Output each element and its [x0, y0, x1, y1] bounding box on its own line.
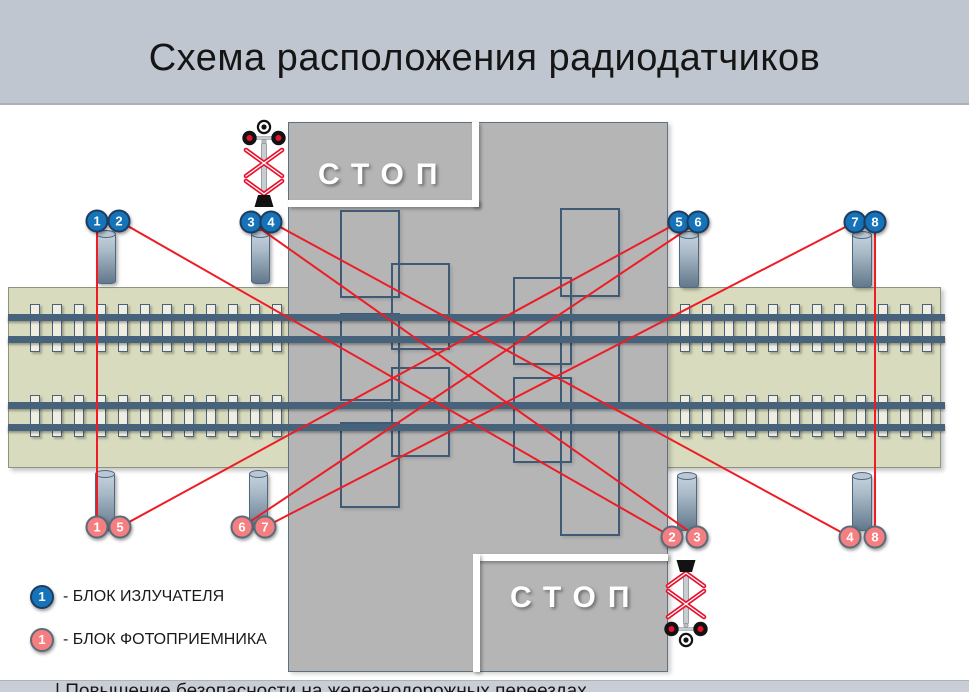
- emitter-block-2: 2: [108, 210, 131, 233]
- signal-red-lamp: [276, 135, 282, 141]
- receiver-block-5: 5: [109, 516, 132, 539]
- receiver-block-8: 8: [864, 526, 887, 549]
- receiver-block-6: 6: [231, 516, 254, 539]
- stop-line-bottom-vertical: [473, 554, 480, 672]
- page-title: Схема расположения радиодатчиков: [149, 23, 821, 80]
- sensor-post: [96, 232, 116, 284]
- stop-text-bottom: СТОП: [510, 581, 641, 615]
- stop-line-top-vertical: [472, 122, 479, 207]
- legend-receiver-icon: 1: [30, 628, 54, 652]
- railway-crossing-signal-top-icon: [238, 117, 290, 217]
- legend-receiver-label: - БЛОК ФОТОПРИЕМНИКА: [63, 631, 267, 649]
- receiver-block-4: 4: [839, 526, 862, 549]
- emitter-block-6: 6: [687, 211, 710, 234]
- sensor-post: [852, 233, 872, 288]
- slide: Схема расположения радиодатчиков СТОП СТ…: [0, 0, 969, 692]
- railway-crossing-signal-bottom-icon: [660, 550, 712, 650]
- signal-base: [255, 195, 274, 207]
- signal-red-lamp: [698, 626, 704, 632]
- footer-bar: | Повышение безопасности на железнодорож…: [0, 680, 969, 692]
- stop-text-top: СТОП: [318, 158, 449, 192]
- sensor-post: [679, 233, 699, 288]
- legend: 1 - БЛОК ИЗЛУЧАТЕЛЯ 1 - БЛОК ФОТОПРИЕМНИ…: [30, 585, 267, 671]
- receiver-block-1: 1: [86, 516, 109, 539]
- signal-base: [677, 560, 696, 572]
- sensor-post: [95, 472, 115, 531]
- legend-emitter-icon: 1: [30, 585, 54, 609]
- emitter-block-1: 1: [86, 210, 109, 233]
- sensor-post: [249, 472, 268, 530]
- sensor-post: [852, 474, 872, 531]
- title-bar: Схема расположения радиодатчиков: [0, 0, 969, 105]
- signal-red-lamp: [669, 626, 675, 632]
- stop-line-bottom-horizontal: [477, 554, 668, 561]
- legend-emitter-label: - БЛОК ИЗЛУЧАТЕЛЯ: [63, 588, 224, 606]
- stop-line-top-horizontal: [288, 200, 479, 207]
- emitter-block-5: 5: [668, 211, 691, 234]
- sensor-post: [677, 474, 697, 531]
- receiver-block-7: 7: [254, 516, 277, 539]
- emitter-block-8: 8: [864, 211, 887, 234]
- footer-text: | Повышение безопасности на железнодорож…: [55, 682, 587, 692]
- receiver-block-3: 3: [686, 526, 709, 549]
- legend-row-emitter: 1 - БЛОК ИЗЛУЧАТЕЛЯ: [30, 585, 267, 609]
- emitter-block-7: 7: [844, 211, 867, 234]
- legend-row-receiver: 1 - БЛОК ФОТОПРИЕМНИКА: [30, 628, 267, 652]
- signal-red-lamp: [247, 135, 253, 141]
- sensor-post: [251, 232, 270, 284]
